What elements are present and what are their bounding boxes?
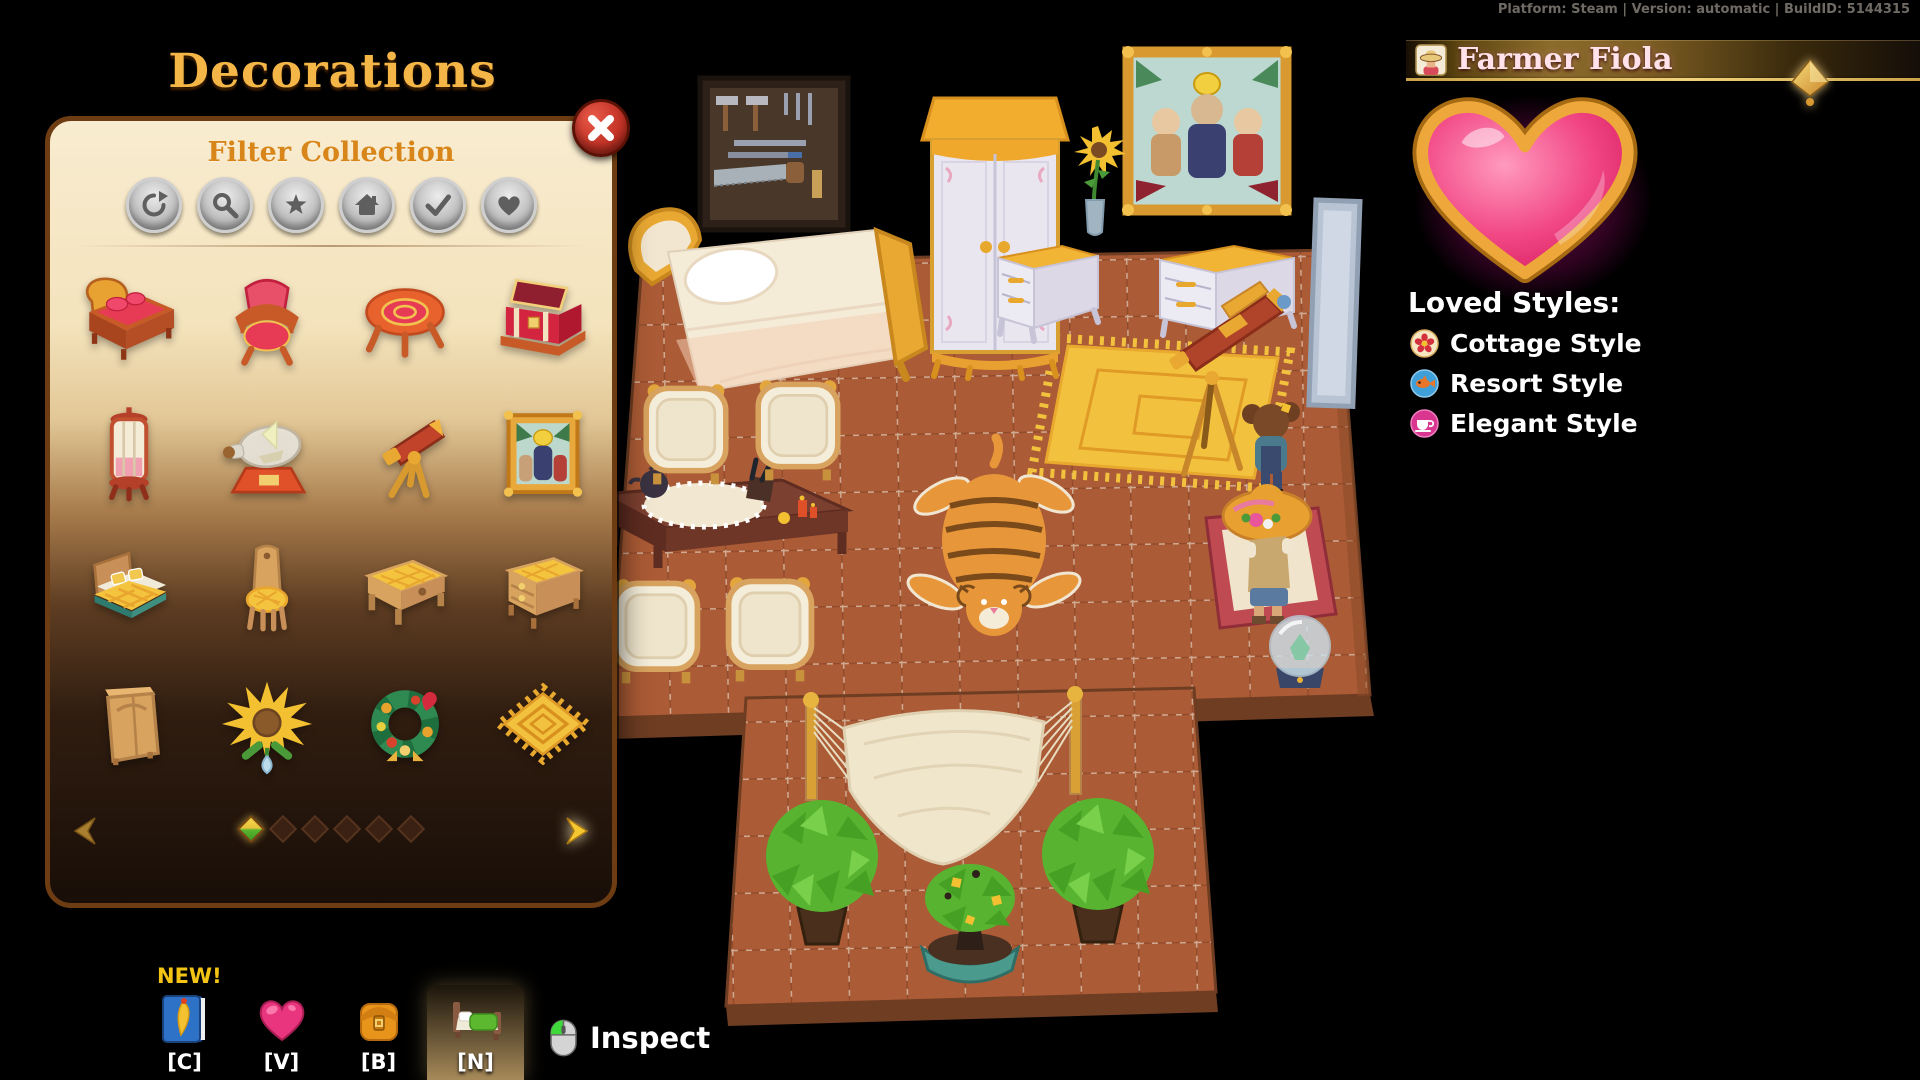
pagination [50,811,612,853]
tool-pegboard [700,78,848,230]
close-icon [586,113,616,143]
item-yellow-table[interactable] [336,522,474,657]
item-red-bed[interactable] [60,253,198,388]
item-red-chest[interactable] [474,253,612,388]
search-icon [210,190,240,220]
inspect-control[interactable]: Inspect [550,1018,710,1058]
style-label: Resort Style [1450,369,1623,398]
page-dots [241,819,421,839]
hotbar: [C] [V] [B] [N] [136,985,524,1080]
item-wooden-wardrobe[interactable] [60,657,198,792]
page-dot-4[interactable] [333,815,361,843]
chair [758,380,838,480]
relationships-tab[interactable]: [V] [233,985,330,1080]
style-label: Cottage Style [1450,329,1642,358]
close-button[interactable] [572,99,630,157]
chair [615,579,698,683]
journal-tab[interactable]: [C] [136,985,233,1080]
check-icon [423,190,453,220]
heart-icon [252,988,312,1048]
page-dot-3[interactable] [301,815,329,843]
style-label: Elegant Style [1450,409,1638,438]
chair [729,577,812,681]
loved-styles-title: Loved Styles: [1408,286,1620,319]
house-icon [352,190,382,220]
decorations-title: Decorations [45,44,620,99]
item-grid [60,253,612,791]
room-scene [600,40,1410,1080]
filter-divider [76,245,586,247]
decorations-tab-selected[interactable]: [N] [427,985,524,1080]
page-dot-1[interactable] [237,815,265,843]
fish-icon [1410,369,1439,398]
item-framed-painting[interactable] [474,388,612,523]
item-sun-mat[interactable] [474,657,612,792]
item-flower-wreath[interactable] [336,657,474,792]
previous-page-arrow[interactable] [66,815,102,847]
item-red-display-lamp[interactable] [60,388,198,523]
refresh-icon [139,190,169,220]
backpack-icon [349,988,409,1048]
item-ship-in-a-bottle[interactable] [198,388,336,523]
filter-buttons-row [50,177,612,233]
decorations-key-label: [N] [457,1050,494,1074]
item-red-round-table[interactable] [336,253,474,388]
relationships-key-label: [V] [264,1050,299,1074]
teacup-icon [1410,409,1439,438]
game-screen: { "debug_bar": { "text": "Platform: Stea… [0,0,1920,1080]
bed-icon [446,988,506,1048]
mouse-icon [550,1018,577,1058]
inspect-label: Inspect [590,1021,710,1055]
page-dot-2[interactable] [269,815,297,843]
gold-wardrobe [922,98,1068,378]
friendship-heart [1408,86,1642,286]
loved-filter-button[interactable] [481,177,537,233]
item-yellow-bed[interactable] [60,522,198,657]
item-yellow-dresser[interactable] [474,522,612,657]
favorites-filter-button[interactable] [268,177,324,233]
item-red-armchair[interactable] [198,253,336,388]
sunflower-vase [1074,126,1126,235]
heart-icon [494,190,524,220]
diamond-ornament [1790,58,1830,108]
inventory-key-label: [B] [361,1050,396,1074]
wall-painting [1122,46,1292,216]
mirror-panel [1309,200,1360,406]
inventory-tab[interactable]: [B] [330,985,427,1080]
item-sunflower[interactable] [198,657,336,792]
item-yellow-chair[interactable] [198,522,336,657]
reset-filter-button[interactable] [126,177,182,233]
search-filter-button[interactable] [197,177,253,233]
owned-filter-button[interactable] [410,177,466,233]
next-page-arrow[interactable] [560,815,596,847]
loved-styles-list: Cottage Style Resort Style Elegant Style [1410,328,1642,439]
filter-collection-title: Filter Collection [50,137,612,168]
chair [646,384,726,484]
flower-icon [1410,329,1439,358]
style-row-resort: Resort Style [1410,368,1642,399]
journal-key-label: [C] [167,1050,202,1074]
style-row-cottage: Cottage Style [1410,328,1642,359]
star-icon [281,190,311,220]
page-dot-6[interactable] [397,815,425,843]
platform-debug-text: Platform: Steam | Version: automatic | B… [1498,2,1910,17]
style-row-elegant: Elegant Style [1410,408,1642,439]
snow-globe [1270,616,1330,688]
decorations-panel: Filter Collection [45,116,617,908]
page-dot-5[interactable] [365,815,393,843]
furniture-filter-button[interactable] [339,177,395,233]
item-telescope[interactable] [336,388,474,523]
journal-icon [155,988,215,1048]
